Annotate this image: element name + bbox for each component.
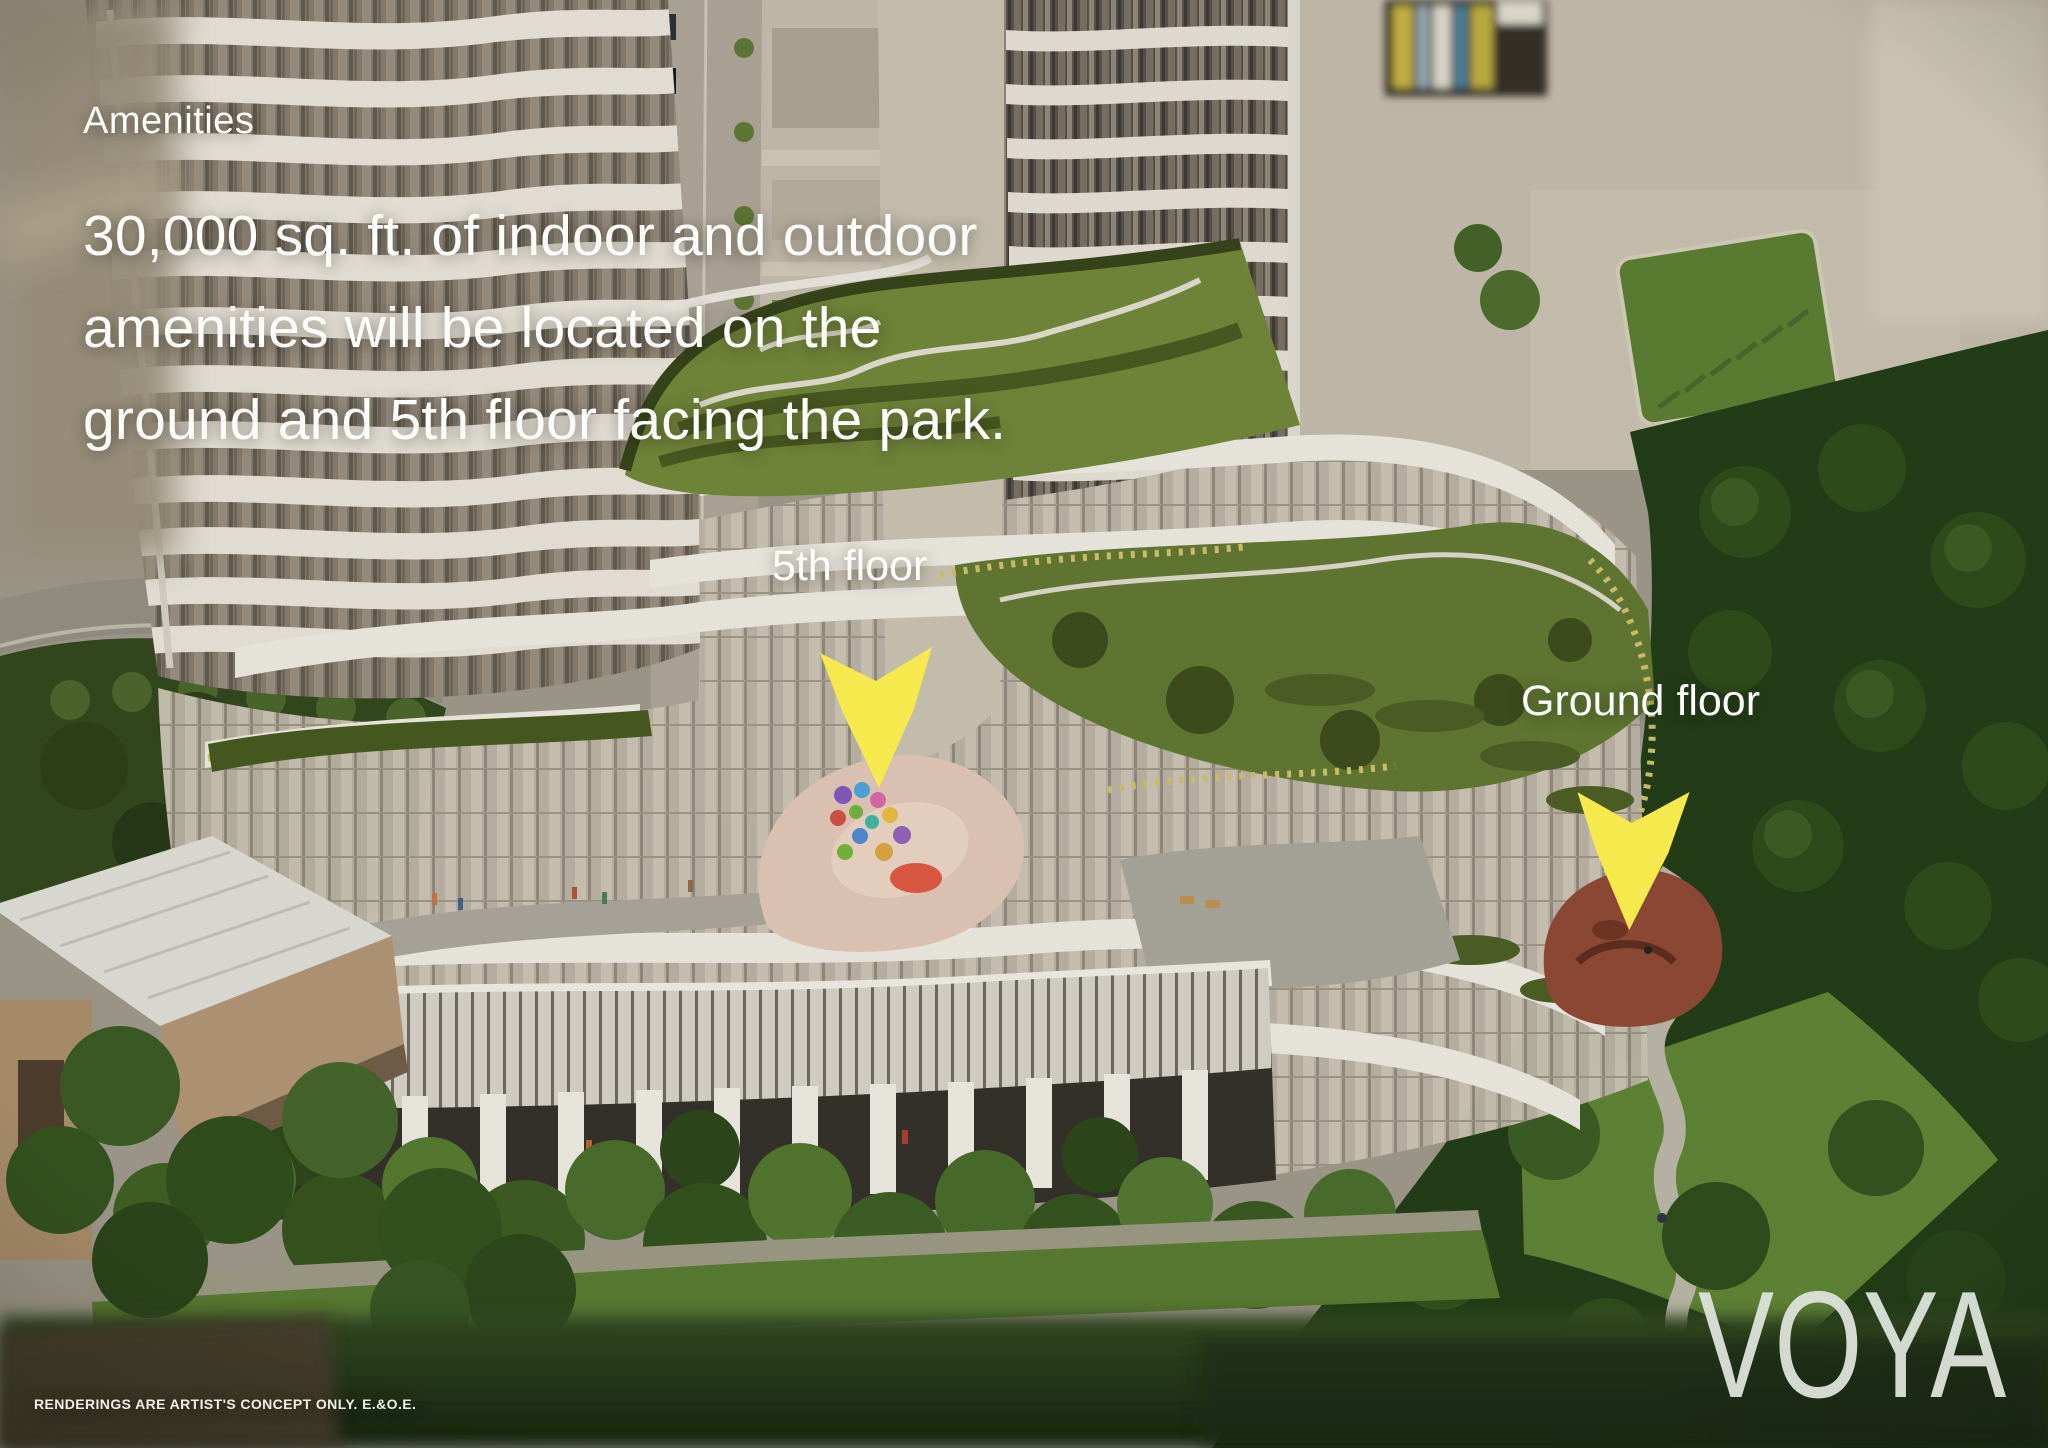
description-line-2: amenities will be located on the bbox=[83, 282, 1006, 374]
renderings-disclaimer: RENDERINGS ARE ARTIST'S CONCEPT ONLY. E.… bbox=[34, 1396, 416, 1412]
down-arrow-shape bbox=[1570, 786, 1689, 933]
voya-logo: VOYA bbox=[1698, 1258, 2006, 1433]
description-line-3: ground and 5th floor facing the park. bbox=[83, 374, 1006, 466]
ground-floor-arrow-icon bbox=[1568, 784, 1691, 933]
fifth-floor-arrow-icon bbox=[818, 645, 934, 788]
ground-floor-label: Ground floor bbox=[1521, 677, 1760, 726]
amenities-rendering-page: Amenities 30,000 sq. ft. of indoor and o… bbox=[0, 0, 2048, 1448]
down-arrow-shape bbox=[820, 647, 932, 788]
amenities-description: 30,000 sq. ft. of indoor and outdoor ame… bbox=[83, 190, 1006, 466]
fifth-floor-label: 5th floor bbox=[772, 542, 927, 591]
description-line-1: 30,000 sq. ft. of indoor and outdoor bbox=[83, 190, 1006, 282]
amenities-heading: Amenities bbox=[83, 100, 254, 143]
